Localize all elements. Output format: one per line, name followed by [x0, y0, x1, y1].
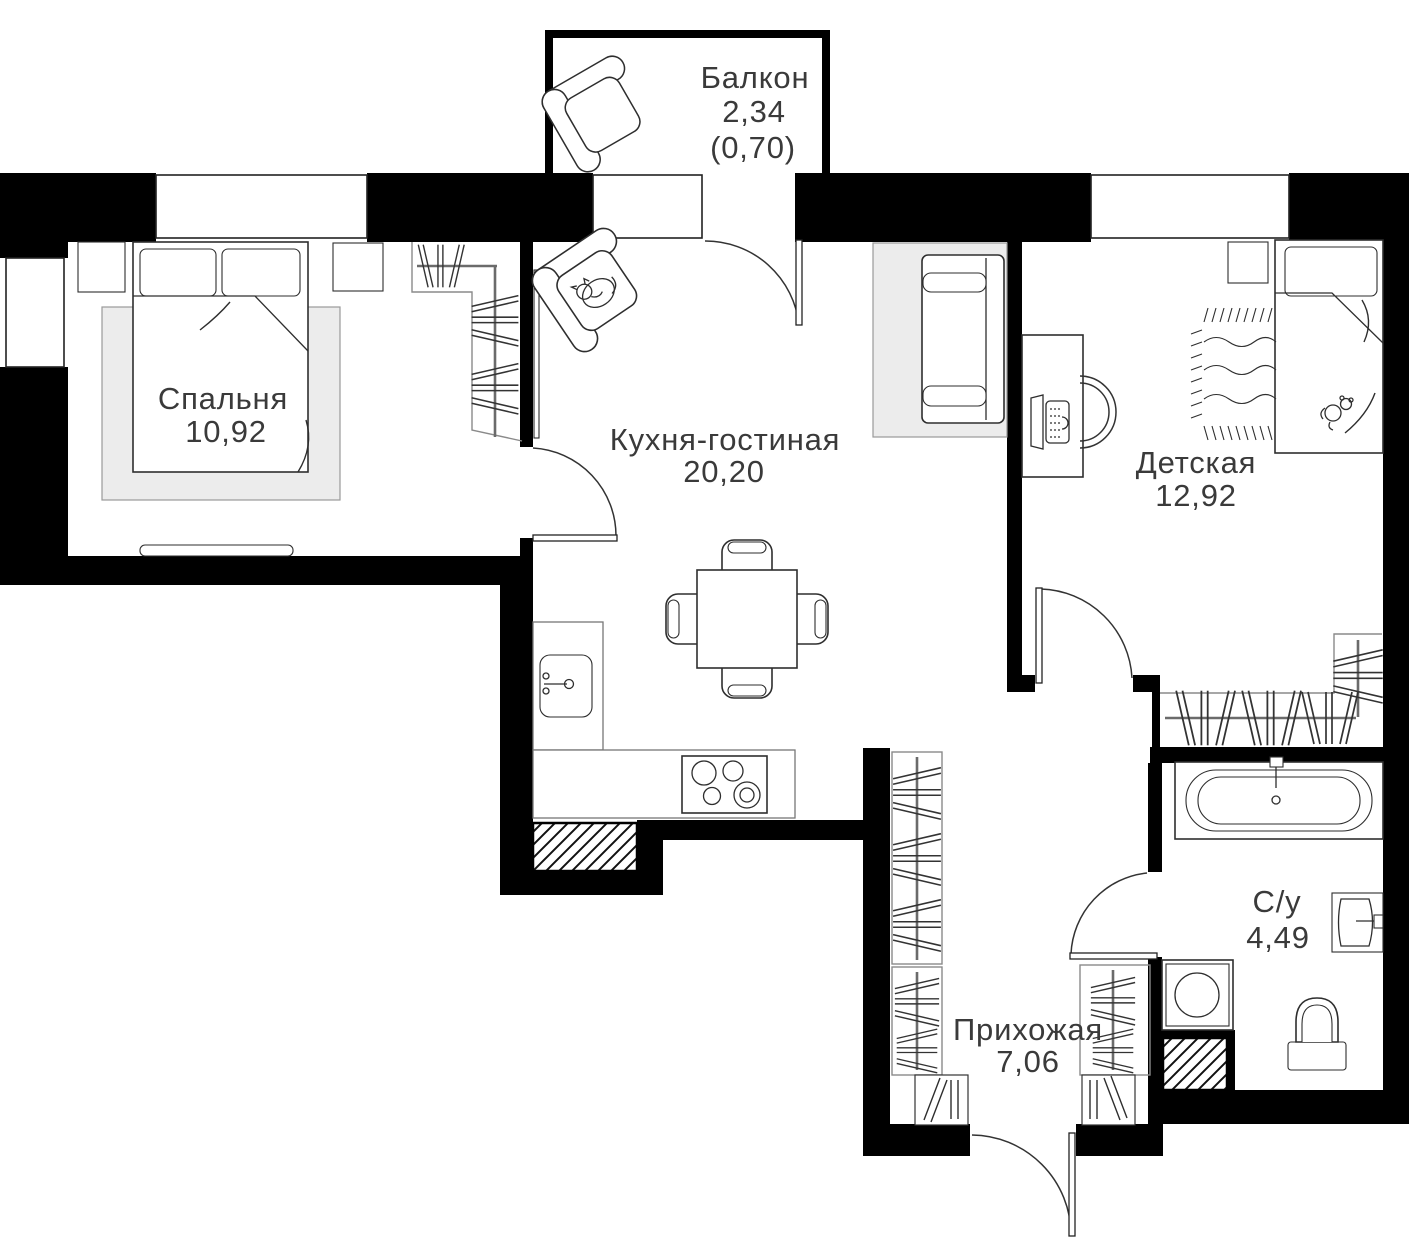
- tv-console: [140, 545, 293, 556]
- balcony-chair: [538, 52, 663, 177]
- stove: [682, 756, 767, 813]
- pillow: [222, 249, 300, 296]
- room-label-balcony: Балкон: [701, 60, 810, 95]
- nightstand: [333, 243, 383, 291]
- door-entrance: [972, 1133, 1075, 1236]
- window-children: [1091, 175, 1289, 238]
- desk-chair: [1080, 376, 1116, 448]
- vent-shaft: [1163, 1038, 1227, 1090]
- children-furniture: [1022, 240, 1383, 477]
- children-rug: [1191, 308, 1276, 440]
- bathroom-sink: [1332, 893, 1383, 952]
- pillow: [140, 249, 216, 296]
- armchair: [527, 223, 660, 356]
- room-area2-balcony: (0,70): [710, 130, 796, 165]
- dining-table: [697, 570, 797, 668]
- window-bedroom-side: [6, 258, 64, 367]
- washing-machine: [1162, 960, 1233, 1030]
- kitchen-sink: [540, 655, 592, 717]
- shoe-cabinet: [915, 1075, 968, 1125]
- room-label-bathroom: С/у: [1253, 884, 1302, 919]
- vent-shaft: [533, 823, 637, 871]
- toilet: [1288, 998, 1346, 1070]
- balcony-furniture: [538, 52, 663, 177]
- room-area-bathroom: 4,49: [1246, 920, 1310, 955]
- door-bathroom: [1070, 873, 1157, 959]
- room-area-hallway: 7,06: [996, 1044, 1060, 1079]
- dining-set: [666, 540, 828, 698]
- door-balcony: [705, 240, 802, 325]
- nightstand: [78, 242, 125, 292]
- tv: [534, 270, 539, 438]
- room-label-children: Детская: [1136, 445, 1256, 480]
- room-area-kitchen: 20,20: [683, 454, 765, 489]
- window-bedroom: [156, 175, 367, 238]
- door-children: [1036, 588, 1132, 683]
- room-area-balcony: 2,34: [722, 94, 786, 129]
- shoe-cabinet: [1082, 1075, 1135, 1125]
- window-kitchen: [593, 175, 702, 238]
- nightstand: [1228, 242, 1268, 283]
- floor-plan: Балкон 2,34 (0,70) Спальня 10,92 Кухня-г…: [0, 0, 1409, 1254]
- door-bedroom: [533, 448, 617, 541]
- bedroom-furniture: [78, 242, 522, 556]
- room-area-children: 12,92: [1155, 478, 1237, 513]
- room-area-bedroom: 10,92: [185, 414, 267, 449]
- room-label-bedroom: Спальня: [158, 381, 288, 416]
- room-label-hallway: Прихожая: [953, 1012, 1103, 1047]
- bathtub: [1175, 757, 1383, 839]
- room-label-kitchen: Кухня-гостиная: [610, 422, 841, 457]
- pillow: [1285, 247, 1377, 296]
